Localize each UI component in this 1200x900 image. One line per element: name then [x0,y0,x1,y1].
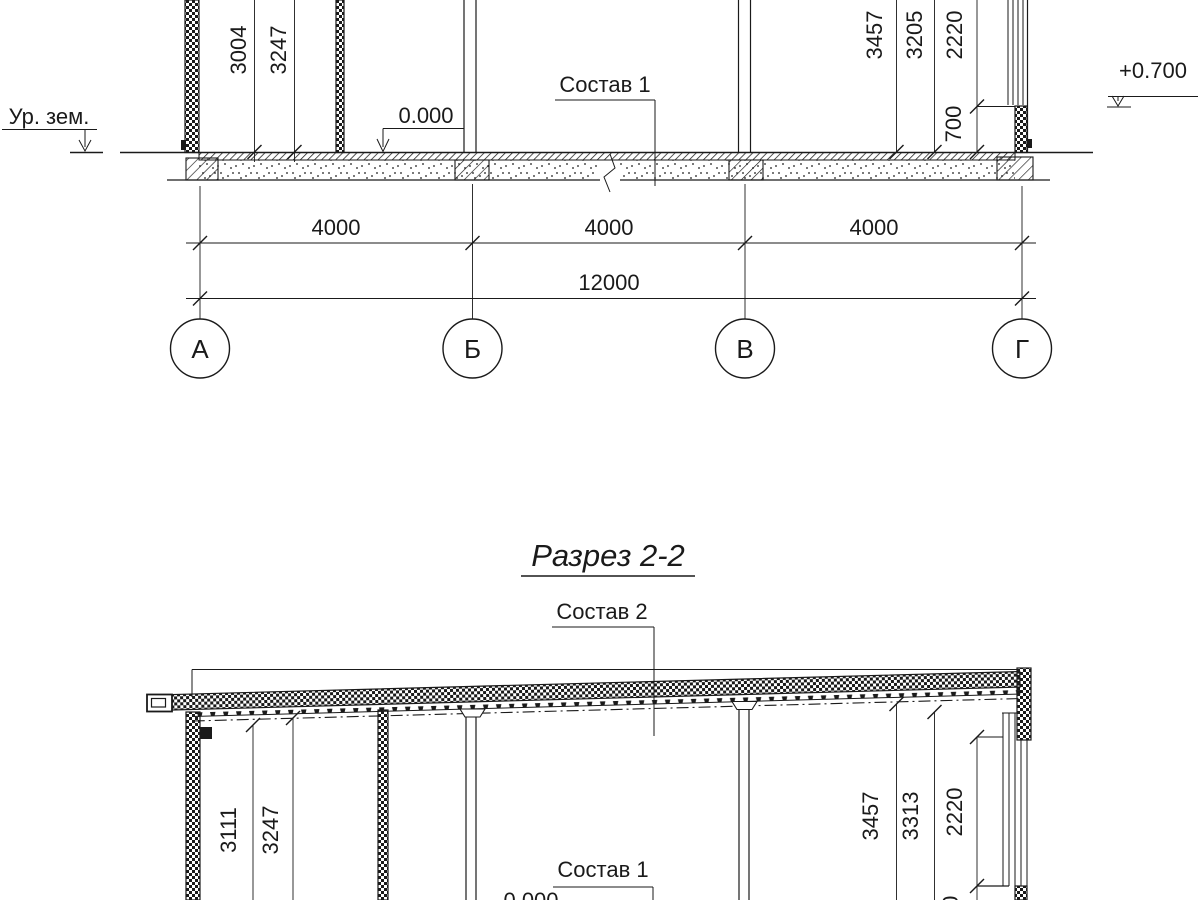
foundation-right [997,157,1033,180]
floor-slab [70,150,1093,192]
parapet-level-label: +0.700 [1119,58,1187,83]
right-wall-hatch [1015,886,1027,900]
dim-2220: 2220 [942,11,967,60]
dim-3313: 3313 [898,792,923,841]
drawing-title: Разрез 2-2 [531,538,685,573]
dim-700: 700 [941,106,966,143]
ground-level-label: Ур. зем. [9,104,90,129]
dim-3247: 3247 [258,806,283,855]
dim-12000: 12000 [578,270,639,295]
axis-label-v: В [736,334,753,364]
roof-composition-callout: Состав 2 [552,599,654,736]
column-capital [732,702,757,710]
dim-700-clipped: 700 [938,896,963,900]
dim-3205: 3205 [902,11,927,60]
floor-composition-label: Состав 1 [559,72,650,97]
parapet-level-mark: +0.700 [1107,58,1198,107]
dim-3004: 3004 [226,26,251,75]
partition-wall-hatch [378,710,388,900]
dim-4000-3: 4000 [850,215,899,240]
horizontal-dimensions: 4000 4000 4000 12000 [186,184,1036,319]
ground-level-mark: Ур. зем. [2,104,97,151]
zero-level-label: 0.000 [398,103,453,128]
dim-3247: 3247 [266,26,291,75]
column-capital [460,709,485,717]
axis-label-g: Г [1015,334,1029,364]
parapet-hatch [1017,668,1031,740]
eave-gutter-detail [147,695,172,712]
dim-4000-2: 4000 [585,215,634,240]
zero-level-mark: 0.000 [377,103,464,152]
right-parapet-glazing [977,668,1031,900]
foundation-v [729,160,763,180]
dim-4000-1: 4000 [312,215,361,240]
axis-label-b: Б [464,334,481,364]
foundation-b [455,160,489,180]
dim-2220: 2220 [942,788,967,837]
dim-3457: 3457 [858,792,883,841]
right-wall-hatch [1015,106,1027,153]
floor-composition-callout: Состав 1 [553,857,653,900]
section-2-cut: Разрез 2-2 Состав 2 [147,538,1031,900]
left-wall-hatch [185,0,199,153]
column-v [732,702,757,900]
left-wall-hatch [186,712,200,900]
dim-3111: 3111 [216,807,241,853]
floor-composition-label: Состав 1 [557,857,648,882]
dim-3457: 3457 [862,11,887,60]
beam-seat-detail [200,727,212,739]
left-wall-anchor-detail [181,140,186,150]
axis-label-a: А [191,334,209,364]
section-drawing-svg: Ур. зем. 0.000 +0.700 Состав 1 [0,0,1200,900]
sloped-roof-package [168,672,1020,722]
axis-bubbles: А Б В Г [171,319,1052,378]
drawing-title-block: Разрез 2-2 [521,538,695,576]
section-1-cut: Ур. зем. 0.000 +0.700 Состав 1 [2,0,1198,378]
column-b [460,709,485,900]
zero-level-label-clipped: 0.000 [503,888,558,900]
partition-wall-hatch [336,0,344,153]
roof-composition-label: Состав 2 [556,599,647,624]
right-wall-glazing [977,0,1032,153]
foundation-left [186,158,218,180]
drawing-canvas: Ур. зем. 0.000 +0.700 Состав 1 [0,0,1200,900]
wall-anchor-detail [1027,139,1032,148]
